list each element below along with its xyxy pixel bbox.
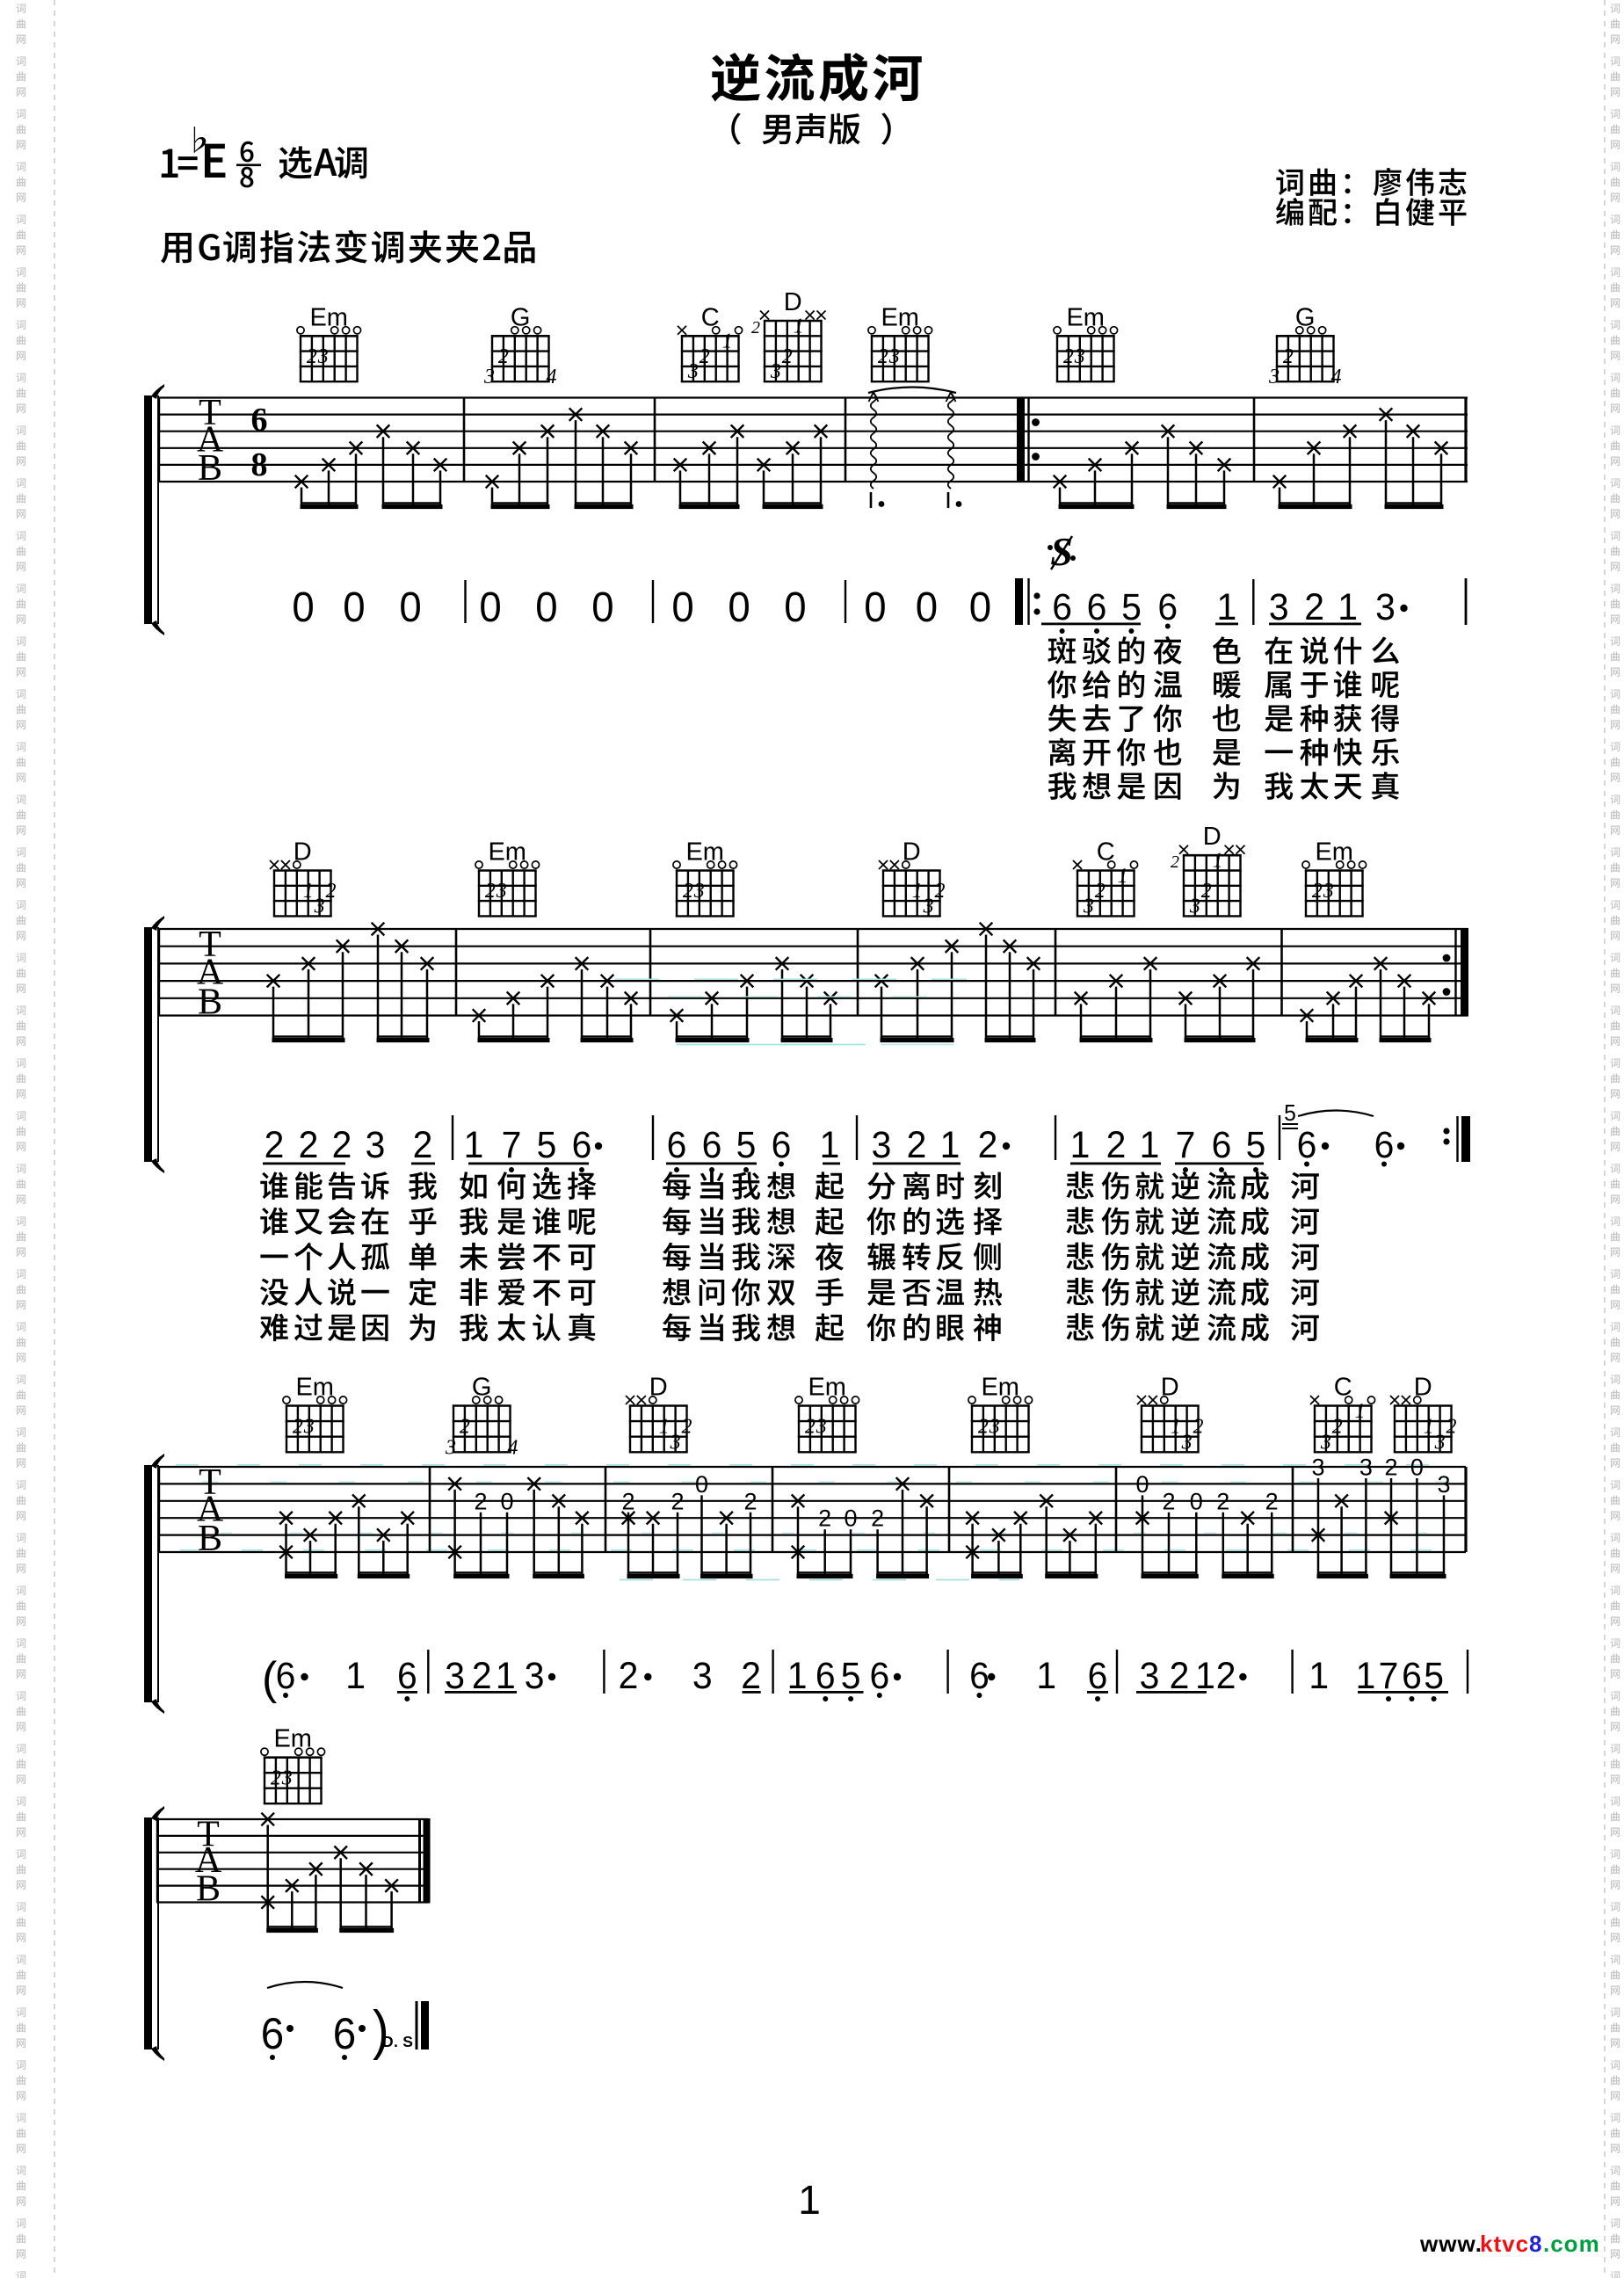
svg-text:3: 3 <box>303 1416 315 1439</box>
svg-text:): ) <box>373 2000 389 2060</box>
svg-text:2: 2 <box>1106 1123 1127 1165</box>
svg-text:2: 2 <box>1283 345 1294 368</box>
svg-text:1: 1 <box>1338 585 1358 628</box>
svg-text:3: 3 <box>1311 1455 1324 1481</box>
svg-text:Em: Em <box>295 1374 334 1402</box>
svg-text:1: 1 <box>787 1654 808 1696</box>
svg-text:D. S: D. S <box>382 2033 413 2050</box>
svg-text:1: 1 <box>1309 1654 1329 1696</box>
svg-text:0: 0 <box>1410 1455 1424 1481</box>
svg-text:1: 1 <box>1356 1654 1376 1696</box>
svg-text:ktvc: ktvc <box>1480 2231 1529 2257</box>
svg-text:8: 8 <box>251 446 268 483</box>
svg-text:3: 3 <box>989 1416 1000 1439</box>
svg-text:0: 0 <box>343 584 365 630</box>
svg-text:6: 6 <box>772 1123 792 1165</box>
svg-text:Em: Em <box>981 1374 1019 1402</box>
svg-text:2: 2 <box>1193 1416 1204 1439</box>
svg-text:2: 2 <box>1446 1416 1457 1439</box>
svg-text:5: 5 <box>1284 1100 1296 1126</box>
svg-text:0: 0 <box>844 1505 857 1532</box>
svg-text:2: 2 <box>1304 585 1324 628</box>
svg-text:3: 3 <box>1269 585 1289 628</box>
svg-text:3: 3 <box>872 1123 892 1165</box>
svg-text:Em: Em <box>309 303 348 331</box>
svg-text:0: 0 <box>695 1471 708 1498</box>
svg-text:1: 1 <box>1171 1416 1181 1439</box>
svg-text:3: 3 <box>445 1436 456 1459</box>
svg-text:6: 6 <box>1402 1654 1422 1696</box>
svg-text:5: 5 <box>537 1123 557 1165</box>
svg-text:1: 1 <box>1216 585 1236 628</box>
svg-text:6: 6 <box>333 2010 356 2058</box>
svg-text:2: 2 <box>682 1416 692 1439</box>
svg-text:2: 2 <box>307 345 317 368</box>
svg-text:1: 1 <box>1070 1123 1091 1165</box>
svg-text:2: 2 <box>326 880 337 903</box>
svg-text:3: 3 <box>692 1654 713 1696</box>
svg-text:5: 5 <box>1246 1123 1266 1165</box>
svg-text:0: 0 <box>399 584 421 630</box>
svg-text:2: 2 <box>1332 1416 1343 1439</box>
svg-text:1: 1 <box>820 1123 840 1165</box>
svg-text:1: 1 <box>1195 1654 1215 1696</box>
svg-text:6: 6 <box>261 2010 284 2058</box>
svg-text:1: 1 <box>722 330 733 353</box>
svg-text:1: 1 <box>345 1654 366 1696</box>
svg-text:0: 0 <box>591 584 613 630</box>
svg-text:3: 3 <box>1268 366 1280 388</box>
svg-text:Em: Em <box>685 838 724 867</box>
svg-text:6: 6 <box>397 1654 417 1696</box>
svg-text:2: 2 <box>978 1123 998 1165</box>
svg-text:Em: Em <box>273 1725 312 1753</box>
svg-text:2: 2 <box>485 880 496 903</box>
svg-text:3: 3 <box>281 1767 293 1790</box>
svg-text:1: 1 <box>1118 865 1128 888</box>
svg-text:2: 2 <box>1384 1455 1397 1481</box>
svg-text:0: 0 <box>916 584 938 630</box>
svg-text:2: 2 <box>871 1505 884 1532</box>
svg-text:8: 8 <box>1529 2231 1541 2257</box>
svg-text:6: 6 <box>816 1654 836 1696</box>
svg-text:6: 6 <box>969 1654 990 1696</box>
svg-text:3: 3 <box>770 360 781 383</box>
svg-text:1: 1 <box>1140 1123 1160 1165</box>
svg-text:6: 6 <box>1212 1123 1232 1165</box>
svg-text:2: 2 <box>1201 880 1212 903</box>
svg-text:2: 2 <box>619 1654 639 1696</box>
svg-text:2: 2 <box>935 880 946 903</box>
svg-text:0: 0 <box>292 584 314 630</box>
svg-text:2: 2 <box>1216 1488 1229 1514</box>
svg-text:5: 5 <box>736 1123 757 1165</box>
svg-text:6: 6 <box>251 402 268 439</box>
svg-text:3: 3 <box>1140 1654 1160 1696</box>
svg-text:1: 1 <box>1355 1400 1366 1423</box>
svg-text:3: 3 <box>687 360 699 383</box>
svg-text:B: B <box>198 983 222 1023</box>
svg-text:www.: www. <box>1419 2231 1483 2257</box>
svg-text:2: 2 <box>671 1488 684 1514</box>
svg-text:5: 5 <box>1121 585 1142 628</box>
svg-text:3: 3 <box>525 1654 545 1696</box>
svg-text:2: 2 <box>743 1488 757 1514</box>
svg-text:6: 6 <box>276 1654 296 1696</box>
svg-text:1: 1 <box>1036 1654 1056 1696</box>
svg-text:4: 4 <box>508 1436 518 1459</box>
svg-text:Em: Em <box>1066 303 1105 331</box>
svg-text:5: 5 <box>1424 1654 1444 1696</box>
svg-text:1: 1 <box>794 315 804 337</box>
svg-text:3: 3 <box>1181 1431 1193 1454</box>
svg-text:3: 3 <box>670 1431 681 1454</box>
svg-text:2: 2 <box>265 1123 285 1165</box>
svg-text:3: 3 <box>1437 1471 1450 1498</box>
svg-text:3: 3 <box>483 366 495 388</box>
svg-text:0: 0 <box>969 584 991 630</box>
svg-text:2: 2 <box>1170 1654 1190 1696</box>
svg-text:3: 3 <box>1189 895 1200 918</box>
svg-text:Em: Em <box>881 303 919 331</box>
svg-text:B: B <box>196 1869 221 1910</box>
svg-text:2: 2 <box>474 1488 487 1514</box>
svg-text:4: 4 <box>1331 366 1342 388</box>
svg-text:2: 2 <box>293 1416 303 1439</box>
svg-text:2: 2 <box>271 1767 281 1790</box>
svg-text:2: 2 <box>683 880 693 903</box>
svg-text:3: 3 <box>1359 1455 1373 1481</box>
svg-text:2: 2 <box>299 1123 319 1165</box>
svg-text:3: 3 <box>1074 345 1085 368</box>
svg-text:1: 1 <box>1424 1416 1434 1439</box>
svg-text:6: 6 <box>1157 585 1178 628</box>
svg-text:0: 0 <box>864 584 886 630</box>
svg-text:0: 0 <box>784 584 806 630</box>
svg-text:0: 0 <box>728 584 750 630</box>
svg-text:3: 3 <box>314 895 325 918</box>
svg-text:6: 6 <box>1374 1123 1395 1165</box>
svg-text:2: 2 <box>741 1654 761 1696</box>
svg-text:2: 2 <box>805 1416 816 1439</box>
svg-text:2: 2 <box>413 1123 433 1165</box>
svg-text:0: 0 <box>535 584 557 630</box>
svg-text:2: 2 <box>700 345 710 368</box>
svg-text:2: 2 <box>332 1123 352 1165</box>
svg-text:6: 6 <box>1087 585 1107 628</box>
svg-text:2: 2 <box>460 1416 470 1439</box>
svg-text:3: 3 <box>816 1416 827 1439</box>
svg-text:B: B <box>198 448 222 489</box>
svg-text:.com: .com <box>1543 2231 1600 2257</box>
svg-text:2: 2 <box>621 1488 634 1514</box>
svg-text:1: 1 <box>1213 850 1223 873</box>
svg-text:0: 0 <box>500 1488 513 1514</box>
svg-text:4: 4 <box>547 366 557 388</box>
svg-text:3: 3 <box>1323 880 1334 903</box>
svg-text:6: 6 <box>1052 585 1072 628</box>
svg-text:2: 2 <box>1162 1488 1175 1514</box>
svg-text:6: 6 <box>1088 1654 1108 1696</box>
svg-text:0: 0 <box>1190 1488 1203 1514</box>
svg-text:1: 1 <box>659 1416 670 1439</box>
svg-text:3: 3 <box>366 1123 386 1165</box>
svg-text:2: 2 <box>472 1654 492 1696</box>
svg-text:3: 3 <box>445 1654 465 1696</box>
svg-text:1: 1 <box>940 1123 961 1165</box>
svg-text:2: 2 <box>1265 1488 1279 1514</box>
svg-text:2: 2 <box>498 345 509 368</box>
svg-text:3: 3 <box>1375 585 1396 628</box>
svg-text:1: 1 <box>912 880 923 903</box>
svg-text:2: 2 <box>1063 345 1074 368</box>
svg-text:7: 7 <box>502 1123 522 1165</box>
svg-text:3: 3 <box>888 345 900 368</box>
svg-text:0: 0 <box>671 584 693 630</box>
svg-text:2: 2 <box>1312 880 1323 903</box>
svg-text:2: 2 <box>978 1416 989 1439</box>
svg-text:D: D <box>1203 823 1222 851</box>
svg-text:Em: Em <box>808 1374 846 1402</box>
svg-text:6: 6 <box>667 1123 687 1165</box>
svg-text:6: 6 <box>869 1654 889 1696</box>
svg-text:2: 2 <box>751 318 760 337</box>
svg-text:7: 7 <box>1379 1654 1399 1696</box>
svg-text:1: 1 <box>303 880 314 903</box>
svg-text:6: 6 <box>572 1123 592 1165</box>
svg-text:2: 2 <box>907 1123 927 1165</box>
svg-text:3: 3 <box>923 895 934 918</box>
svg-text:3: 3 <box>693 880 705 903</box>
svg-text:1: 1 <box>496 1654 516 1696</box>
svg-text:2: 2 <box>782 345 793 368</box>
svg-text:6: 6 <box>1297 1123 1317 1165</box>
svg-text:1: 1 <box>464 1123 484 1165</box>
svg-text:2: 2 <box>1171 852 1179 872</box>
svg-text:3: 3 <box>1320 1431 1331 1454</box>
svg-text:3: 3 <box>1083 895 1094 918</box>
svg-text:Em: Em <box>1315 838 1353 867</box>
svg-text:2: 2 <box>1216 1654 1236 1696</box>
svg-text:6: 6 <box>702 1123 722 1165</box>
svg-text:B: B <box>198 1519 222 1559</box>
svg-text:5: 5 <box>841 1654 861 1696</box>
svg-text:0: 0 <box>1135 1471 1149 1498</box>
svg-text:2: 2 <box>818 1505 831 1532</box>
svg-text:Em: Em <box>488 838 526 867</box>
svg-text:3: 3 <box>317 345 329 368</box>
svg-text:2: 2 <box>1095 880 1106 903</box>
svg-text:3: 3 <box>496 880 507 903</box>
svg-text:2: 2 <box>878 345 888 368</box>
svg-text:1: 1 <box>798 2177 821 2223</box>
svg-text:7: 7 <box>1176 1123 1196 1165</box>
svg-text:D: D <box>784 288 802 316</box>
svg-text:3: 3 <box>1434 1431 1446 1454</box>
svg-text:0: 0 <box>479 584 501 630</box>
